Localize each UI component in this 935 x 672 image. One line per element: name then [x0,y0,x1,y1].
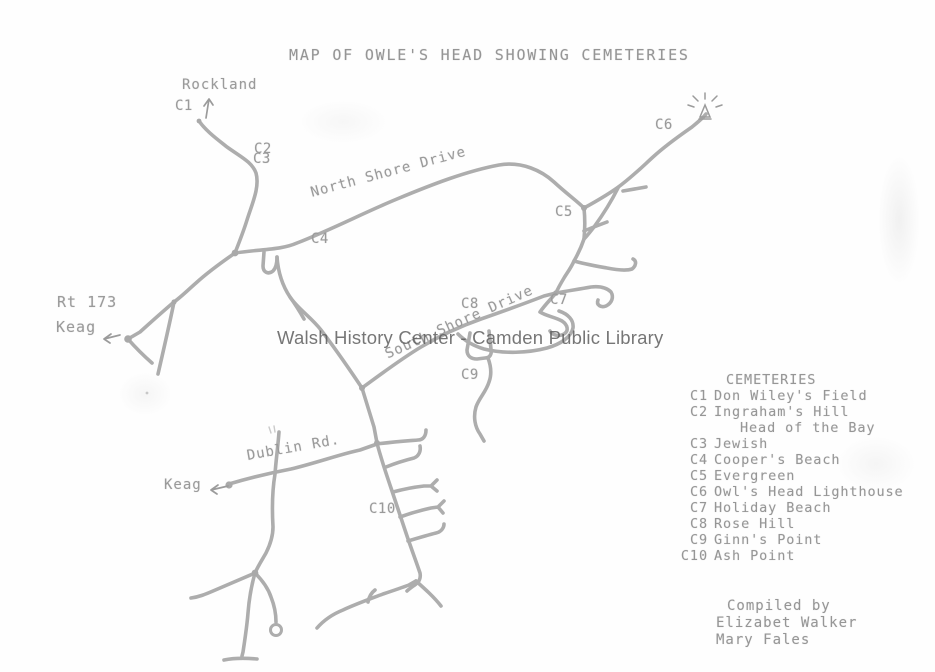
road-north-shore-drive [235,164,584,253]
road-lighthouse-spur [623,187,646,191]
road-comb-5 [408,524,444,541]
marker-c5: C5 [555,204,573,220]
credits-block: Compiled by Elizabet Walker Mary Fales [716,598,857,649]
label-rt173: Rt 173 [57,293,117,311]
legend-code: C3 [662,436,708,452]
road-to-lighthouse [584,114,706,208]
marker-c3: C3 [253,151,271,167]
label-rockland: Rockland [182,77,257,93]
cemeteries-legend: CEMETERIES C1Don Wiley's Field C2Ingraha… [662,372,904,564]
legend-code: C2 [662,404,708,420]
legend-code [662,420,708,436]
road-left-south [242,573,255,656]
arrow-up-icon [204,99,213,118]
road-rt173-tail [128,339,152,363]
road-bottom-tail [416,581,441,606]
road-comb-1 [377,430,426,444]
map-title: MAP OF OWLE'S HEAD SHOWING CEMETERIES [289,46,690,64]
road-middle [277,257,362,388]
scan-mark [269,426,275,433]
road-left-west [191,573,255,598]
legend-heading: CEMETERIES [726,372,904,388]
road-c5-loop [584,188,618,239]
marker-c4: C4 [311,231,329,247]
marker-c1: C1 [175,98,193,114]
road-rockland [199,121,257,253]
label-keag-south: Keag [164,477,202,493]
legend-code: C7 [662,500,708,516]
legend-name: Ash Point [714,548,795,564]
legend-item: C3Jewish [662,436,904,452]
legend-code: C10 [662,548,708,564]
marker-c9: C9 [461,367,479,383]
road-stub-loop [263,252,277,273]
marker-c10: C10 [369,501,396,517]
road-branch-east [574,259,636,270]
arrow-left-icon [104,334,120,343]
road-comb-2 [386,446,420,467]
road-rt173 [128,253,235,339]
legend-name: Jewish [714,436,768,452]
legend-name: Ginn's Point [714,532,822,548]
credits-line: Elizabet Walker [716,615,857,632]
legend-name: Holiday Beach [714,500,831,516]
legend-item: C4Cooper's Beach [662,452,904,468]
legend-item: C10Ash Point [662,548,904,564]
legend-item: Head of the Bay [662,420,904,436]
credits-line: Mary Fales [716,632,857,649]
road-culdesac-loop [271,625,282,636]
watermark: Walsh History Center - Camden Public Lib… [277,327,663,349]
legend-item: C5Evergreen [662,468,904,484]
scan-dot [146,392,149,395]
road-comb-3 [393,480,437,492]
legend-item: C8Rose Hill [662,516,904,532]
marker-c7: C7 [550,292,568,308]
credits-line: Compiled by [727,598,857,615]
legend-item: C6Owl's Head Lighthouse [662,484,904,500]
legend-name: Rose Hill [714,516,795,532]
legend-code: C1 [662,388,708,404]
legend-name: Ingraham's Hill [714,404,849,420]
scanned-map-page: MAP OF OWLE'S HEAD SHOWING CEMETERIES Ro… [0,0,935,672]
arrow-left-icon [211,485,228,494]
road-c5-south [556,208,585,293]
legend-item: C7Holiday Beach [662,500,904,516]
legend-code: C6 [662,484,708,500]
legend-item: C9Ginn's Point [662,532,904,548]
legend-code: C8 [662,516,708,532]
legend-item: C1Don Wiley's Field [662,388,904,404]
legend-name: Don Wiley's Field [714,388,867,404]
legend-code: C9 [662,532,708,548]
road-bottom [317,581,416,628]
road-comb-4 [400,501,444,517]
legend-name: Evergreen [714,468,795,484]
legend-name: Owl's Head Lighthouse [714,484,904,500]
legend-code: C5 [662,468,708,484]
legend-code: C4 [662,452,708,468]
legend-item: C2Ingraham's Hill [662,404,904,420]
label-keag-west: Keag [56,318,96,336]
legend-name: Head of the Bay [740,420,875,436]
marker-c6: C6 [655,117,673,133]
road-left-southeast [255,573,276,622]
road-tbar-end [224,658,257,660]
legend-name: Cooper's Beach [714,452,840,468]
